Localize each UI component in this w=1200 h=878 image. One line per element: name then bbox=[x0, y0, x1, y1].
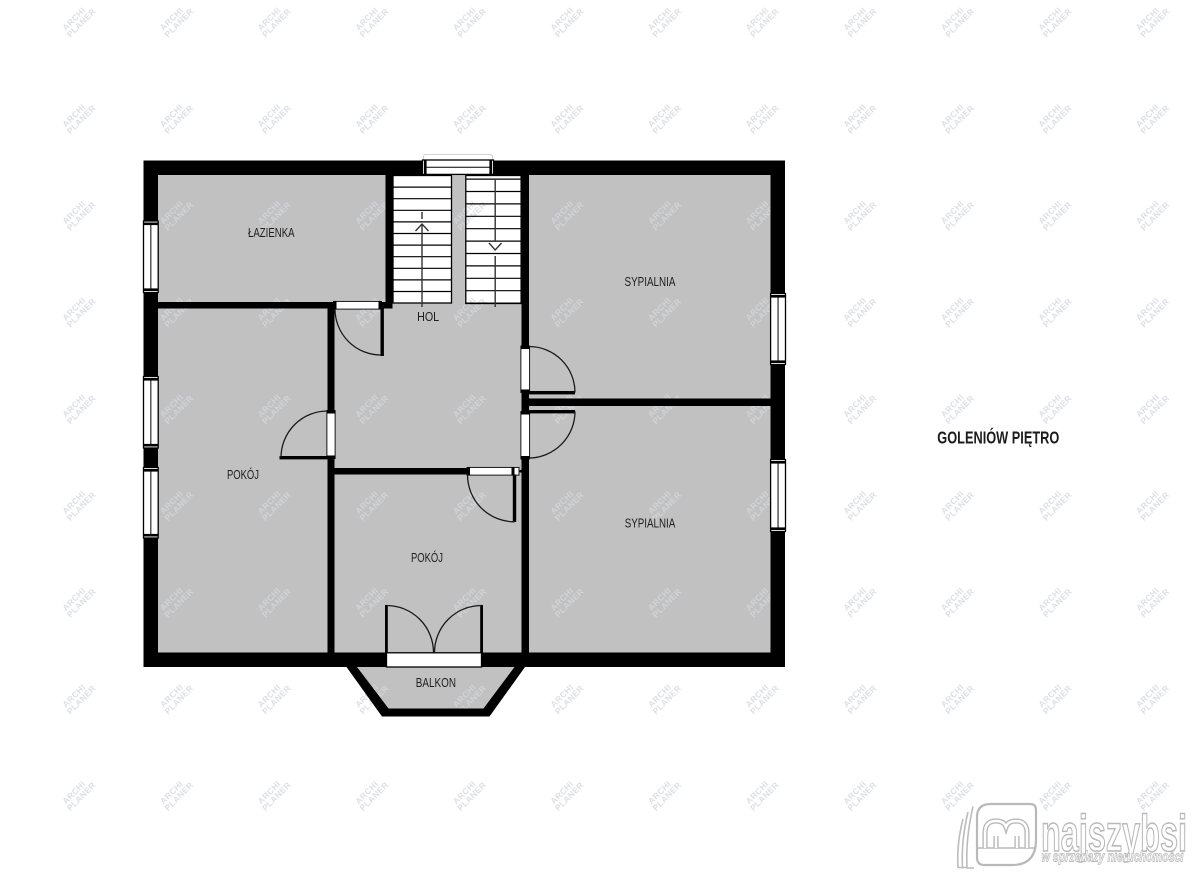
svg-text:POKÓJ: POKÓJ bbox=[227, 467, 259, 482]
svg-text:GOLENIÓW PIĘTRO: GOLENIÓW PIĘTRO bbox=[937, 427, 1059, 448]
svg-text:HOL: HOL bbox=[417, 310, 439, 324]
svg-text:POKÓJ: POKÓJ bbox=[411, 550, 443, 565]
svg-text:SYPIALNIA: SYPIALNIA bbox=[625, 516, 676, 530]
svg-text:w sprzedaży nieruchomości: w sprzedaży nieruchomości bbox=[1042, 850, 1185, 866]
svg-text:ŁAZIENKA: ŁAZIENKA bbox=[248, 226, 295, 240]
svg-text:BALKON: BALKON bbox=[416, 676, 456, 690]
svg-text:SYPIALNIA: SYPIALNIA bbox=[625, 275, 677, 289]
